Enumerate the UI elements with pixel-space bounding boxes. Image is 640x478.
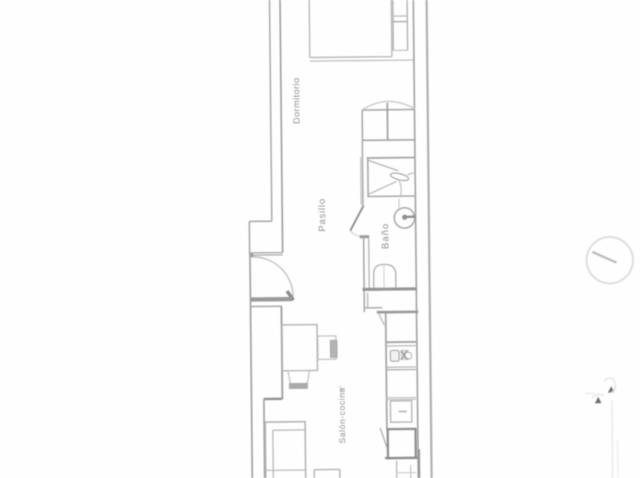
svg-text:Pasillo: Pasillo: [317, 198, 328, 232]
svg-text:Salón-cocina: Salón-cocina: [337, 387, 348, 443]
svg-text:Dormitorio: Dormitorio: [291, 77, 301, 124]
svg-text:Baño: Baño: [380, 223, 391, 249]
